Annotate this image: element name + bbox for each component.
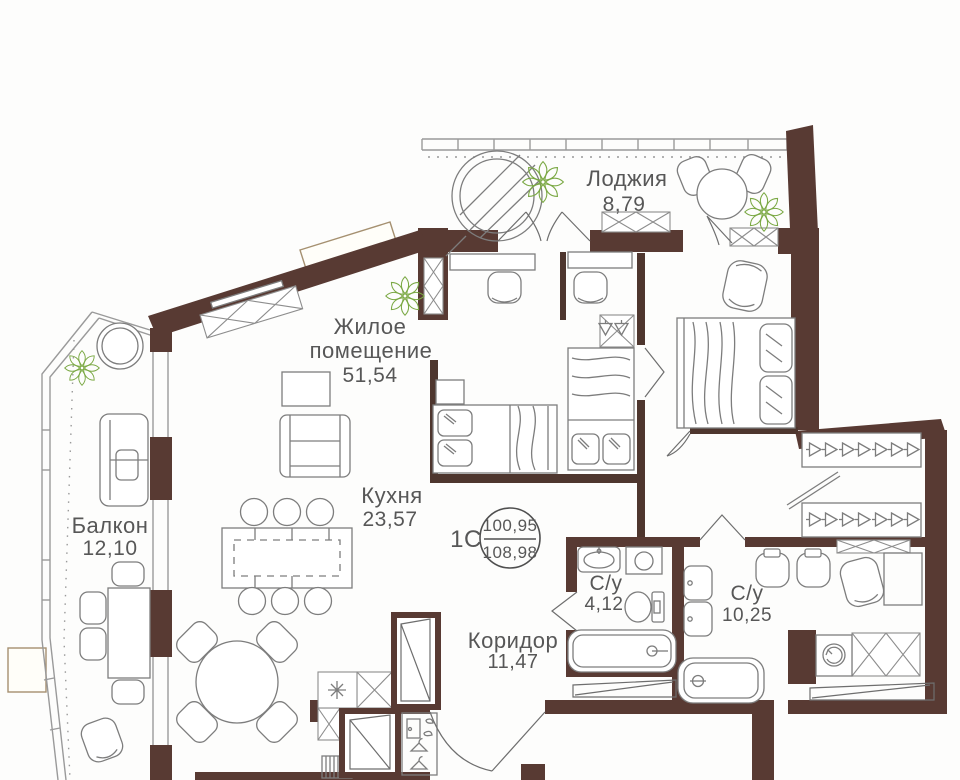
balcony-partition-windows <box>153 352 168 745</box>
plant-icon <box>523 162 564 203</box>
area-corridor: 11,47 <box>487 651 538 673</box>
label-balcony: Балкон <box>72 513 149 538</box>
area-living: 51,54 <box>342 364 397 387</box>
balcony-sofa <box>100 414 148 506</box>
loggia-glazing <box>422 139 787 157</box>
loggia-table-set <box>674 151 774 219</box>
master-bedroom-furniture <box>677 258 795 428</box>
area-loggia: 8,79 <box>603 193 646 216</box>
apartment-area-living: 100,95 <box>483 516 538 535</box>
label-kitchen: Кухня <box>361 483 422 508</box>
plant-icon <box>65 351 100 386</box>
wardrobe-room <box>787 433 921 537</box>
label-living-1: Жилое <box>334 314 407 339</box>
bedroom1-furniture <box>433 254 557 473</box>
apartment-code: 1С <box>450 526 482 553</box>
apartment-area-total: 108,98 <box>483 543 538 562</box>
label-bath-large: С/у <box>731 582 764 605</box>
area-bath-small: 4,12 <box>585 594 624 615</box>
label-living-2: помещение <box>310 338 433 363</box>
label-corridor: Коридор <box>468 628 558 653</box>
floor-plan: Лоджия 8,79 Жилое помещение 51,54 Кухня … <box>0 0 960 780</box>
area-kitchen: 23,57 <box>362 508 417 531</box>
area-bath-large: 10,25 <box>722 605 772 626</box>
sofa <box>280 415 350 477</box>
bedroom2-furniture <box>568 252 634 470</box>
label-bath-small: С/у <box>590 572 623 595</box>
label-loggia: Лоджия <box>587 166 668 191</box>
apartment-stamp: 1С 100,95 108,98 <box>450 508 540 568</box>
plant-icon <box>745 193 783 231</box>
round-table-set <box>173 618 301 746</box>
area-balcony: 12,10 <box>82 537 137 560</box>
